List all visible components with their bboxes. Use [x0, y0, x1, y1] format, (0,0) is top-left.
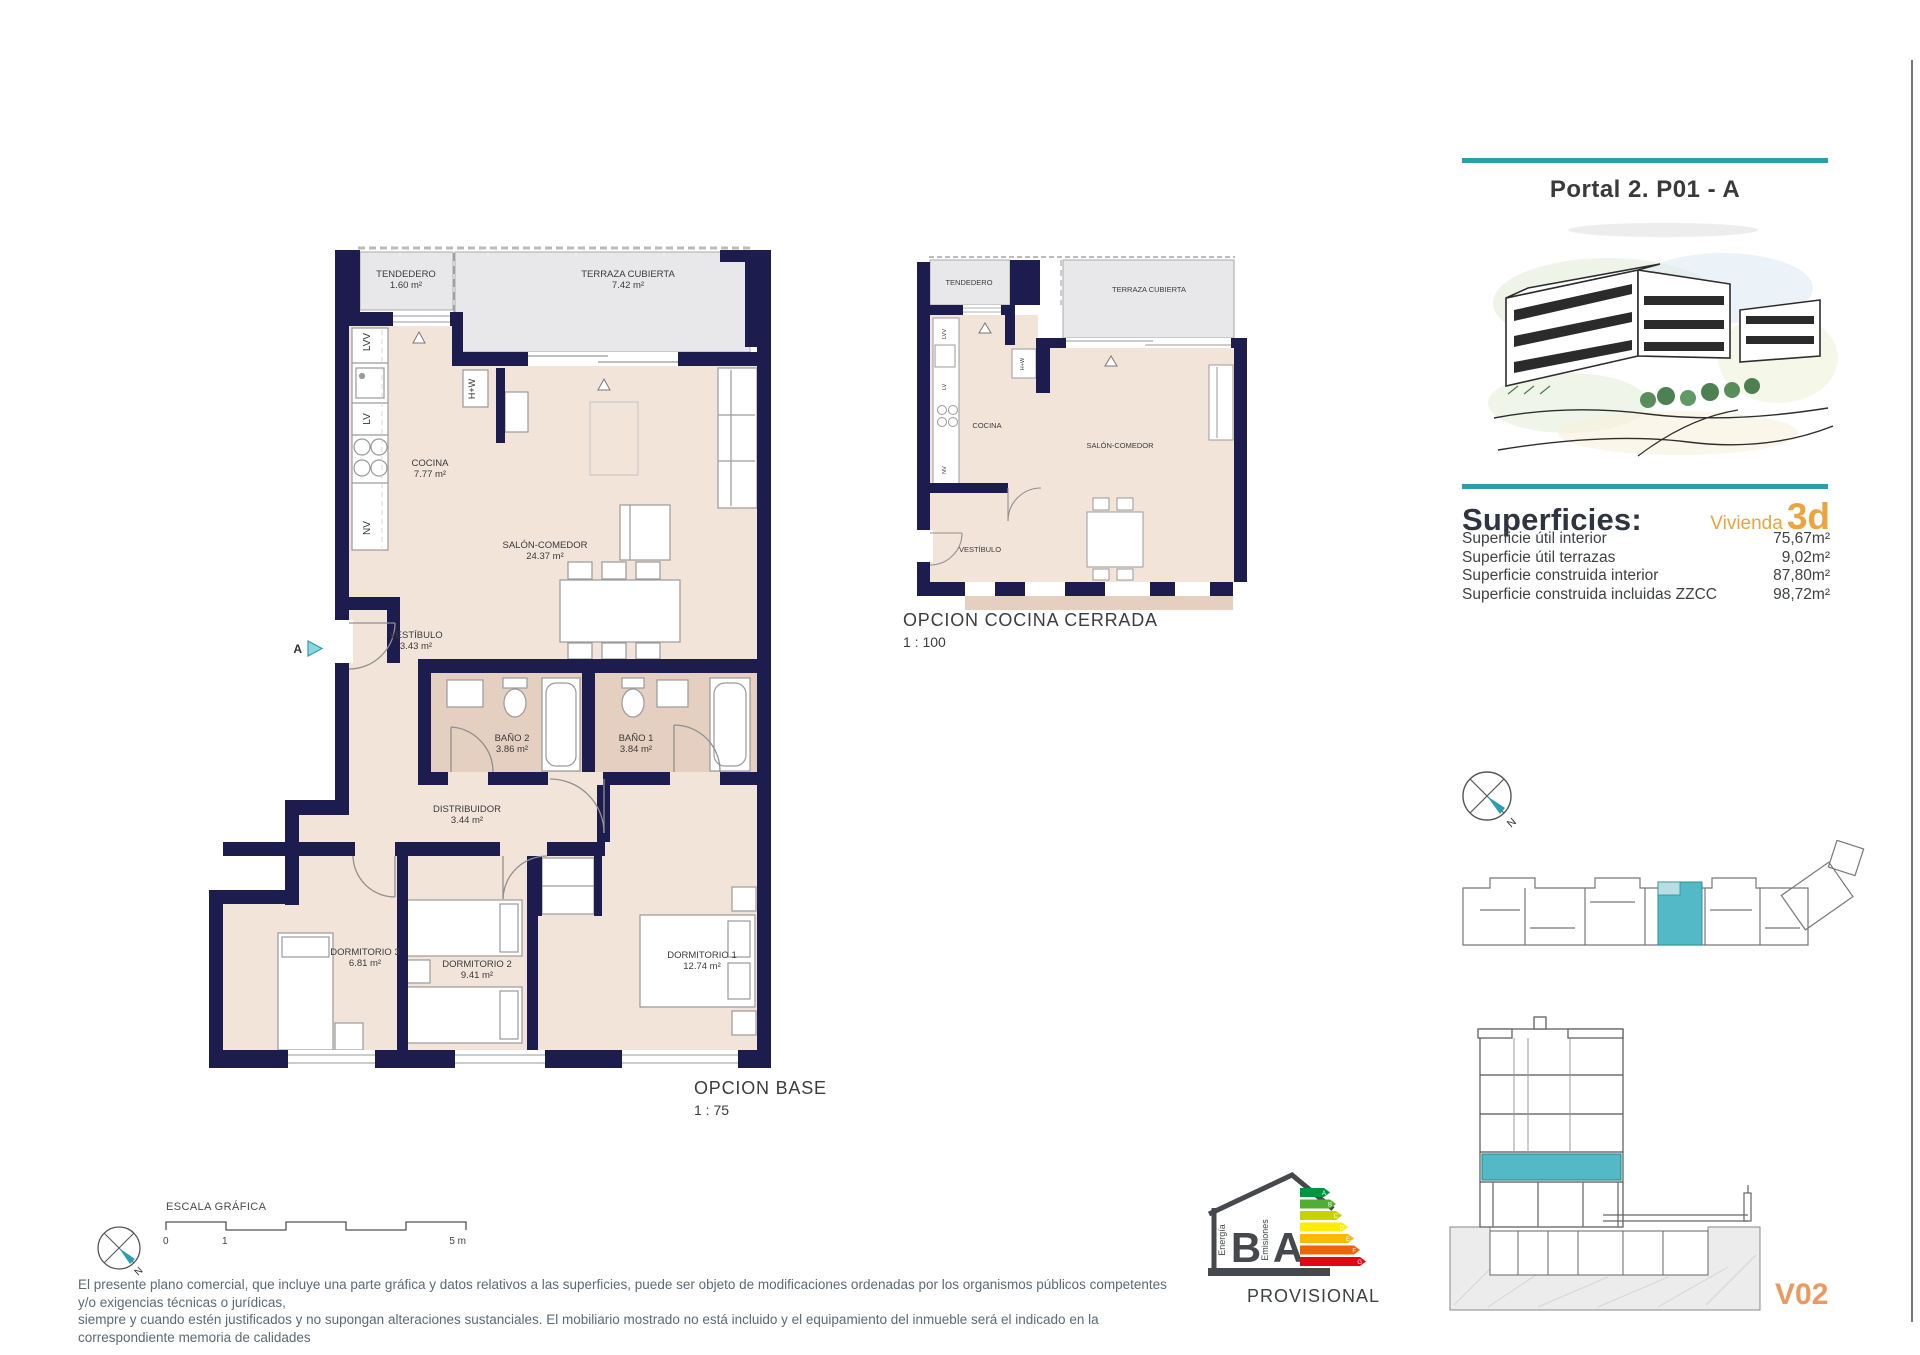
sink [447, 680, 483, 707]
emisiones-rating: A [1273, 1224, 1303, 1271]
room-label-bano2: BAÑO 23.86 m² [495, 733, 530, 755]
kitchen-counter [352, 328, 388, 550]
bathtub [710, 678, 750, 771]
main-floor-plan: A TENDEDERO1.60 m² TERRAZA CUBIERTA7.42 … [190, 235, 790, 1085]
graphic-scale-bar: 0 1 5 m [160, 1214, 490, 1248]
kitchen-plan-caption: OPCION COCINA CERRADA 1 : 100 [903, 610, 1158, 650]
main-plan-scale: 1 : 75 [694, 1102, 827, 1118]
sketch-smudge [1568, 223, 1758, 237]
room-label-vestibulo: VESTÍBULO [959, 545, 1001, 554]
label-lvv: LVV [362, 333, 373, 351]
corner-block [1828, 840, 1863, 875]
svg-text:C: C [1334, 1214, 1339, 1220]
energy-rating-logo: Energía B Emisiones A A B C D E F G [1200, 1168, 1385, 1286]
label-lvv: LVV [942, 329, 948, 339]
kitchen-sink [356, 368, 384, 398]
kitchen-plan-title: OPCION COCINA CERRADA [903, 610, 1158, 631]
compass-north: N [1455, 766, 1529, 838]
superficies-rule [1462, 484, 1828, 489]
compass-north-small: N [92, 1222, 156, 1280]
superficies-table: Superficie útil interior75,67m² Superfic… [1462, 530, 1830, 604]
svg-text:E: E [1346, 1237, 1350, 1243]
superficie-row: Superficie útil terrazas9,02m² [1462, 549, 1830, 568]
entry-arrow-icon [308, 641, 322, 656]
scale-tick-end: 5 m [449, 1236, 466, 1247]
tv-wall-stub [496, 368, 505, 443]
room-label-tendedero: TENDEDERO [945, 278, 992, 287]
kitchen-plan-scale: 1 : 100 [903, 634, 1158, 650]
scale-bar-title: ESCALA GRÁFICA [166, 1201, 266, 1213]
site-key-plan [1460, 840, 1885, 960]
label-lv: LV [942, 384, 948, 391]
window [288, 1050, 375, 1068]
label-lv: LV [362, 413, 373, 425]
nightstand [405, 960, 430, 983]
nightstand [335, 1023, 363, 1050]
sofa [1209, 365, 1233, 440]
svg-text:A: A [1322, 1191, 1326, 1197]
scale-tick-0: 0 [163, 1236, 169, 1247]
kitchen-sink [935, 345, 955, 367]
highlighted-unit [1658, 882, 1702, 945]
window [622, 1050, 738, 1068]
angled-wing [1781, 862, 1853, 930]
scale-tick-1: 1 [222, 1236, 228, 1247]
toilet-tank [503, 678, 527, 688]
superficie-row: Superficie construida incluidas ZZCC98,7… [1462, 586, 1830, 605]
toilet [504, 689, 526, 717]
sofa [718, 368, 757, 508]
svg-text:D: D [1340, 1226, 1345, 1232]
svg-text:F: F [1352, 1249, 1356, 1255]
section-tower [1478, 1017, 1623, 1227]
podium-deck [1603, 1185, 1751, 1221]
toilet-tank [622, 678, 644, 688]
disclaimer-line-1: El presente plano comercial, que incluye… [78, 1276, 1188, 1311]
north-label: N [1505, 816, 1519, 830]
label-nv: NV [942, 466, 948, 474]
entry-letter: A [293, 642, 302, 656]
main-plan-caption: OPCION BASE 1 : 75 [694, 1078, 827, 1118]
plan-sheet-page: { "panel": { "title": "Portal 2. P01 - A… [0, 0, 1920, 1355]
building-sketch [1488, 218, 1838, 468]
window-slider [528, 352, 678, 366]
armchair [620, 505, 670, 560]
chimney [1534, 1017, 1546, 1029]
basement [1490, 1231, 1708, 1275]
version-tag: V02 [1775, 1278, 1828, 1312]
disclaimer: El presente plano comercial, que incluye… [78, 1276, 1188, 1346]
superficie-row: Superficie construida interior87,80m² [1462, 567, 1830, 586]
page-title: Portal 2. P01 - A [1462, 176, 1828, 204]
building-section [1448, 1015, 1913, 1315]
label-hw: H+W [467, 378, 477, 399]
energia-rating: B [1231, 1224, 1261, 1271]
window [455, 1050, 545, 1068]
kitchen-option-plan: TENDEDERO TERRAZA CUBIERTA COCINA SALÓN-… [905, 250, 1255, 610]
energia-label: Energía [1217, 1224, 1227, 1256]
page-border [1911, 60, 1913, 1322]
disclaimer-line-2: siempre y cuando estén justificados y no… [78, 1311, 1188, 1346]
svg-text:B: B [1328, 1203, 1332, 1209]
nightstand [732, 887, 756, 911]
toilet [622, 689, 644, 717]
room-label-cocina: COCINA7.77 m² [412, 458, 450, 480]
energy-bar-f [1300, 1246, 1360, 1255]
sink [657, 680, 688, 707]
label-hw: H+W [1020, 357, 1026, 370]
bathtub [542, 678, 580, 771]
room-label-bano1: BAÑO 13.84 m² [619, 733, 654, 755]
main-plan-title: OPCION BASE [694, 1078, 827, 1099]
room-label-salon: SALÓN-COMEDOR [1086, 441, 1154, 450]
nightstand [732, 1011, 756, 1035]
floor-fills [930, 315, 1234, 610]
window [393, 312, 450, 326]
emisiones-label: Emisiones [1260, 1219, 1270, 1261]
room-label-cocina: COCINA [972, 421, 1001, 430]
energy-bar-g [1300, 1257, 1366, 1266]
building-footprint [1463, 878, 1808, 945]
superficie-row: Superficie útil interior75,67m² [1462, 530, 1830, 549]
provisional-label: PROVISIONAL [1247, 1286, 1380, 1307]
entry-opening [914, 530, 933, 562]
entry-opening [331, 620, 353, 663]
svg-text:G: G [1357, 1260, 1362, 1266]
room-label-terraza: TERRAZA CUBIERTA [1112, 285, 1186, 294]
energy-scale-bars: A B C D E F G [1300, 1188, 1366, 1266]
entry-marker: A [293, 641, 322, 656]
title-rule [1462, 158, 1828, 163]
tv-bench [505, 392, 528, 432]
label-nv: NV [362, 521, 373, 535]
highlighted-floor [1482, 1154, 1621, 1180]
